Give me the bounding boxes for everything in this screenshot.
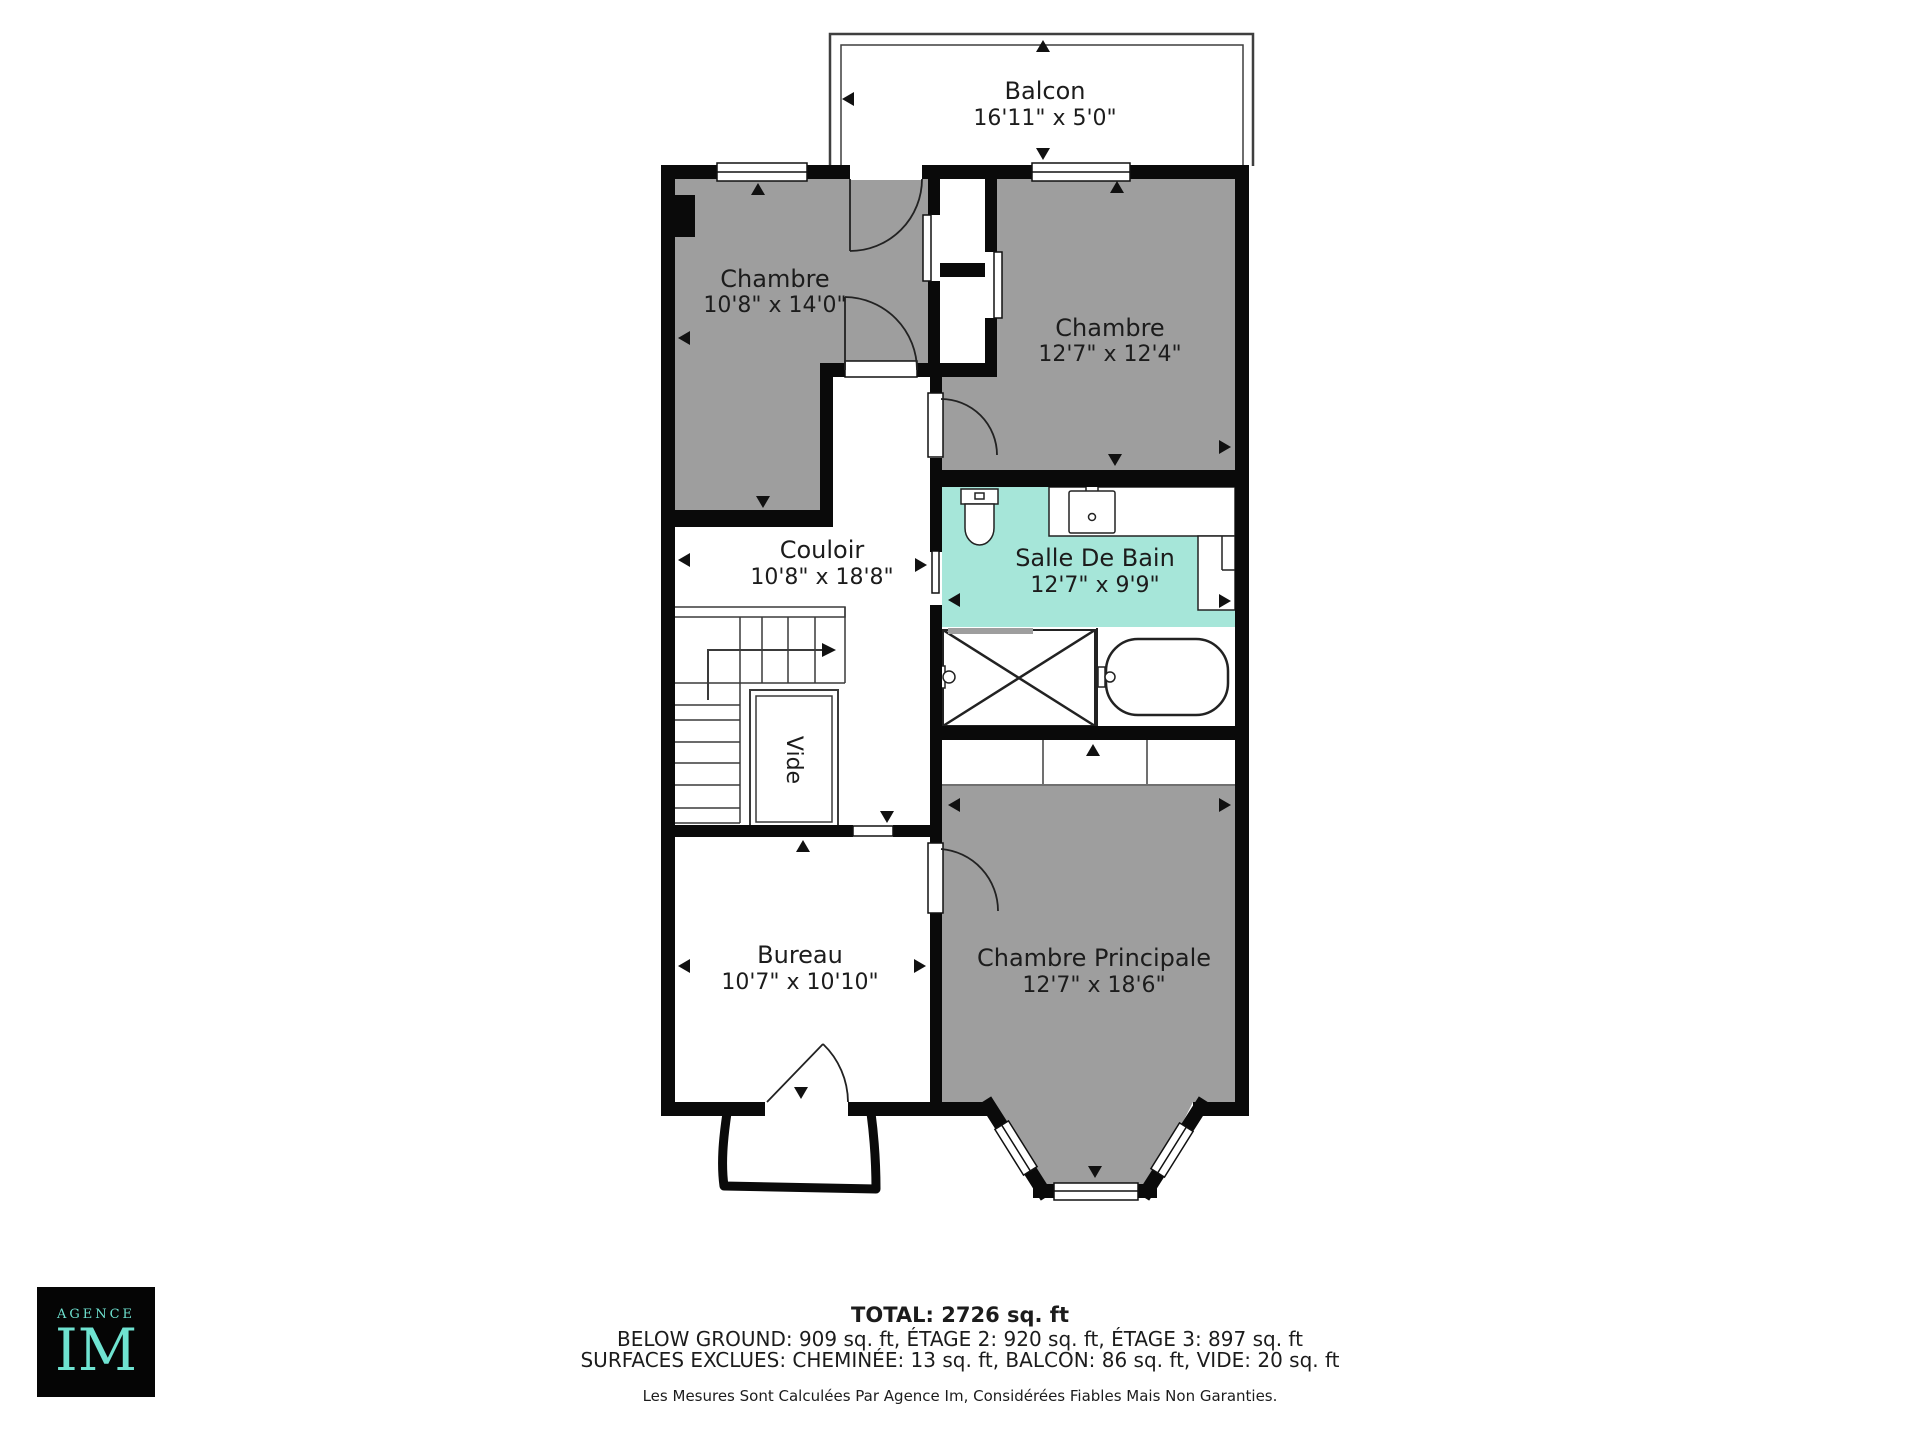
label-couloir-name: Couloir: [780, 536, 865, 564]
label-bain-dims: 12'7" x 9'9": [1030, 573, 1159, 598]
exclusions-text: SURFACES EXCLUES: CHEMINÉE: 13 sq. ft, B…: [0, 1348, 1920, 1372]
label-couloir-dims: 10'8" x 18'8": [750, 565, 893, 590]
toilet-button: [975, 493, 984, 499]
label-chambre2-name: Chambre: [1055, 314, 1164, 342]
label-chambre1-dims: 10'8" x 14'0": [703, 293, 846, 318]
total-area-text: TOTAL: 2726 sq. ft: [0, 1303, 1920, 1327]
room-chambre-1: [672, 179, 928, 510]
sink: [1069, 491, 1115, 533]
label-principale-dims: 12'7" x 18'6": [1022, 973, 1165, 998]
stair-direction-arrow: [822, 643, 836, 657]
toilet-bowl: [965, 504, 994, 545]
master-closet-row: [942, 740, 1235, 785]
bath-nook: [1198, 536, 1235, 610]
label-chambre1-name: Chambre: [720, 265, 829, 293]
label-balcon-name: Balcon: [1005, 77, 1086, 105]
label-bureau-name: Bureau: [757, 941, 843, 969]
label-principale-name: Chambre Principale: [977, 944, 1211, 972]
exterior-stoop: [723, 1113, 876, 1189]
tub-faucet: [1098, 667, 1105, 687]
disclaimer-text: Les Mesures Sont Calculées Par Agence Im…: [0, 1387, 1920, 1405]
label-bain-name: Salle De Bain: [1015, 544, 1175, 572]
floor-plan-page: Balcon 16'11" x 5'0" Chambre 10'8" x 14'…: [0, 0, 1920, 1440]
label-balcon-dims: 16'11" x 5'0": [973, 106, 1116, 131]
label-vide: Vide: [781, 736, 806, 784]
sink-drain: [1089, 514, 1096, 521]
floor-plan-drawing: Balcon 16'11" x 5'0" Chambre 10'8" x 14'…: [0, 0, 1920, 1440]
label-chambre2-dims: 12'7" x 12'4": [1038, 342, 1181, 367]
label-bureau-dims: 10'7" x 10'10": [721, 970, 878, 995]
agency-logo: AGENCE IM: [37, 1287, 155, 1397]
bathtub: [1106, 639, 1228, 715]
agency-logo-main: IM: [55, 1324, 137, 1376]
chimney: [661, 195, 695, 237]
